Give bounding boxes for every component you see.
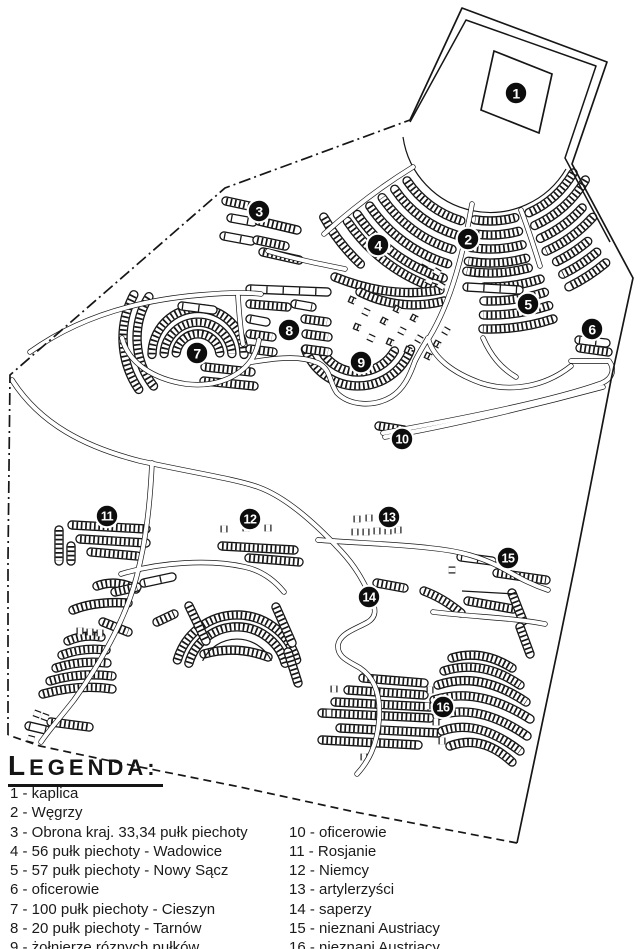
- map-marker-16: 16: [432, 696, 455, 719]
- map-marker-10: 10: [391, 428, 414, 451]
- map-marker-3: 3: [248, 200, 271, 223]
- map-marker-15: 15: [497, 547, 520, 570]
- map-marker-14: 14: [358, 586, 381, 609]
- marker-number: 9: [357, 355, 365, 371]
- marker-number: 7: [193, 346, 201, 362]
- cemetery-plan-page: 12345678910111213141516 LEGENDA: 1 - kap…: [0, 0, 640, 949]
- marker-number: 12: [244, 513, 257, 527]
- map-marker-2: 2: [457, 228, 480, 251]
- marker-number: 14: [363, 591, 376, 605]
- marker-number: 11: [101, 510, 114, 524]
- map-marker-9: 9: [350, 351, 373, 374]
- marker-number: 13: [383, 511, 396, 525]
- map-marker-4: 4: [367, 234, 390, 257]
- marker-number: 5: [524, 297, 532, 313]
- map-marker-12: 12: [239, 508, 262, 531]
- map-marker-1: 1: [505, 82, 528, 105]
- marker-number: 4: [374, 238, 382, 254]
- marker-number: 1: [512, 86, 520, 102]
- marker-number: 16: [437, 701, 450, 715]
- cemetery-map: 12345678910111213141516: [0, 0, 640, 949]
- marker-number: 15: [502, 552, 515, 566]
- map-marker-13: 13: [378, 506, 401, 529]
- marker-number: 2: [464, 232, 472, 248]
- map-marker-6: 6: [581, 318, 604, 341]
- map-marker-7: 7: [186, 342, 209, 365]
- map-marker-11: 11: [96, 505, 119, 528]
- map-marker-5: 5: [517, 293, 540, 316]
- marker-number: 8: [285, 323, 293, 339]
- map-marker-8: 8: [278, 319, 301, 342]
- marker-number: 10: [396, 433, 409, 447]
- marker-number: 3: [255, 204, 263, 220]
- boundary-layer: [8, 8, 633, 843]
- marker-number: 6: [588, 322, 596, 338]
